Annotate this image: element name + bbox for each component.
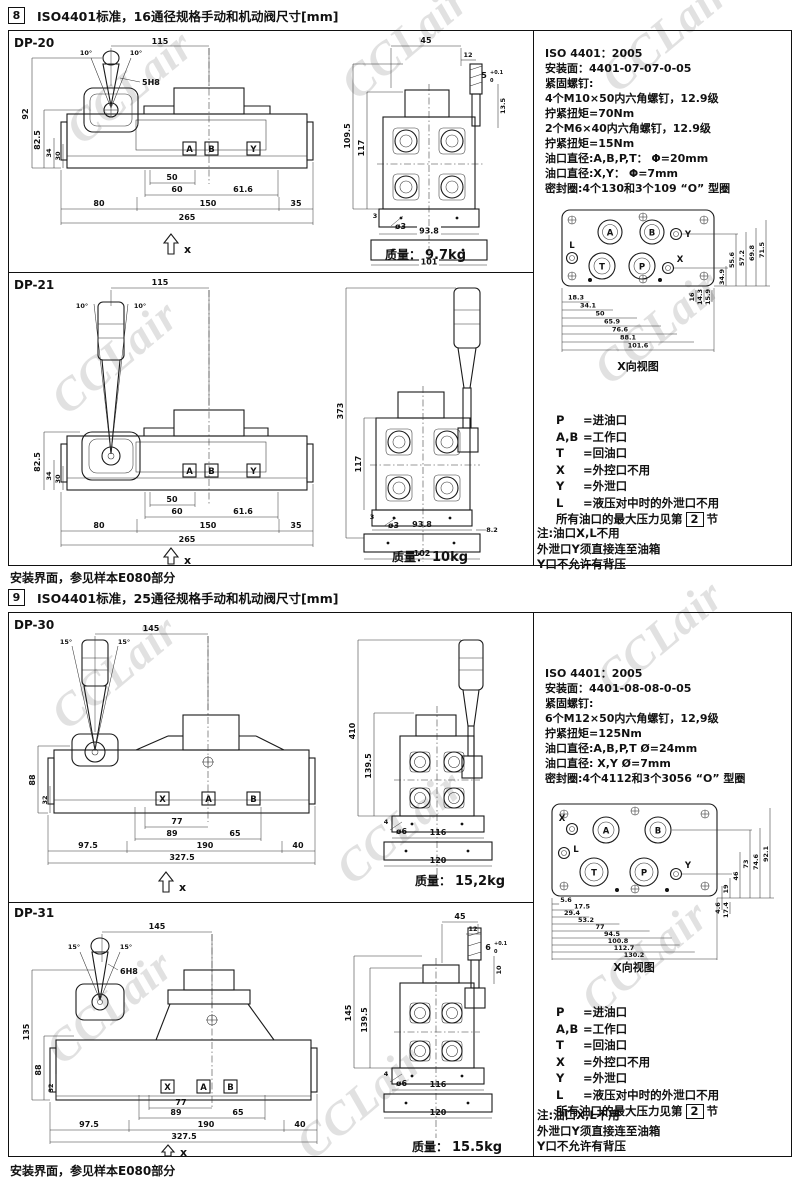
dim-label: 116 xyxy=(430,1080,447,1089)
angle-label: 10° xyxy=(76,302,88,310)
port-label: A xyxy=(186,467,193,477)
section-8-header: 8 ISO4401标准，16通径规格手动和机动阀尺寸[mm] xyxy=(8,6,338,25)
x-direction-label: x xyxy=(180,1146,187,1159)
dp31-side-dimension-lines xyxy=(354,922,494,1118)
dim-label: 45 xyxy=(420,36,432,45)
dim-label: 80 xyxy=(93,521,105,530)
legend-key: T xyxy=(556,445,583,462)
spec-line: 油口直径:A,B,P,T： Φ=20mm xyxy=(545,151,787,166)
dim-label: 35 xyxy=(290,521,302,530)
dim-label: 145 xyxy=(143,624,160,633)
up-arrow-icon xyxy=(162,1145,174,1156)
port-label: B xyxy=(655,827,661,837)
dim-label: 74.6 xyxy=(752,854,760,871)
legend-value: =工作口 xyxy=(583,430,627,444)
dim-label: 77 xyxy=(171,817,182,826)
dim-label: ø6 xyxy=(396,1079,407,1088)
dim-label: 117 xyxy=(357,140,366,157)
dim-label: 5 xyxy=(481,71,487,80)
dim-label: 150 xyxy=(200,521,217,530)
dim-label: 19 xyxy=(722,884,730,894)
dim-label: 3 xyxy=(370,513,375,521)
dim-label: 89 xyxy=(166,829,178,838)
dp20-side-drawing: 45 12 5 +0.1 0 13.5 109.5 117 3 ø3 93.8 … xyxy=(335,36,530,268)
port-label: Y xyxy=(684,230,692,240)
dim-label: 61.6 xyxy=(233,185,253,194)
angle-label: 15° xyxy=(60,638,72,646)
mass-note: 质量：15.5kg xyxy=(412,1138,502,1155)
pin-label: 5H8 xyxy=(142,78,160,87)
panel-divider xyxy=(8,902,533,903)
mass-note: 质量：15,2kg xyxy=(415,872,505,889)
note-line: 外泄口Y须直接连至油箱 xyxy=(537,1124,660,1140)
dim-label: 135 xyxy=(22,1023,31,1040)
dim-label: 12 xyxy=(463,51,472,59)
dim-label: 92.1 xyxy=(762,846,770,863)
note-line: Y口不允许有背压 xyxy=(537,1139,660,1155)
legend-row: Y=外泄口 xyxy=(556,478,719,495)
legend-row: L=液压对中时的外泄口不用 xyxy=(556,1087,719,1104)
legend-key: L xyxy=(556,1087,583,1104)
dim-label: 115 xyxy=(152,37,169,46)
dim-label: 32 xyxy=(47,1083,55,1092)
dim-label: 16 xyxy=(688,292,696,302)
spec-line: 拧紧扭矩=15Nm xyxy=(545,136,787,151)
dim-label: 50 xyxy=(595,310,605,318)
section-9-header: 9 ISO4401标准，25通径规格手动和机动阀尺寸[mm] xyxy=(8,588,338,607)
mass-label: 质量： xyxy=(385,248,421,262)
legend-row: Y=外泄口 xyxy=(556,1070,719,1087)
spec-line: 密封圈:4个130和3个109 “O” 型圈 xyxy=(545,181,787,196)
spec-line: 紧固螺钉: xyxy=(545,76,787,91)
legend-row: A,B=工作口 xyxy=(556,429,719,446)
dim-label: 65.9 xyxy=(604,318,621,326)
spec-line: ISO 4401：2005 xyxy=(545,666,787,681)
dim-label: 88 xyxy=(34,1064,43,1076)
port-label: X xyxy=(159,795,166,805)
angle-label: 15° xyxy=(120,943,132,951)
iso-spec-block: ISO 4401：2005 安装面：4401-08-08-0-05 紧固螺钉: … xyxy=(545,666,787,786)
spec-line: 安装面：4401-08-08-0-05 xyxy=(545,681,787,696)
section-title: ISO4401标准，25通径规格手动和机动阀尺寸[mm] xyxy=(37,588,338,607)
port-label: P xyxy=(639,263,645,273)
dim-label: 120 xyxy=(430,1108,447,1117)
section-title: ISO4401标准，16通径规格手动和机动阀尺寸[mm] xyxy=(37,6,338,25)
dim-label: 34.9 xyxy=(718,269,726,286)
x-direction-label: x xyxy=(184,243,191,256)
dp31-front-drawing: 145 15° 15° 6H8 135 88 32 X A B 77 89 65… xyxy=(16,912,336,1156)
view-caption: X向视图 xyxy=(617,359,658,373)
dim-label: 5.6 xyxy=(560,896,572,904)
port-label: L xyxy=(573,845,579,855)
dim-label: ø3 xyxy=(388,521,399,530)
dim-label: 40 xyxy=(294,1120,306,1129)
up-arrow-icon xyxy=(159,872,173,892)
legend-value: =外泄口 xyxy=(583,479,627,493)
mounting-interface-footnote: 安装界面，参见样本E080部分 xyxy=(10,569,175,586)
legend-row: L=液压对中时的外泄口不用 xyxy=(556,495,719,512)
dim-label: 97.5 xyxy=(79,1120,99,1129)
dim-label: 14.3 xyxy=(696,289,704,305)
dim-label: 80 xyxy=(93,199,105,208)
port-label: B xyxy=(250,795,256,805)
dp21-front-drawing: 115 10° 10° 82.5 34 30 A B Y 50 60 61.6 … xyxy=(16,276,331,566)
mass-value: 9.7kg xyxy=(425,248,466,263)
spec-line: 拧紧扭矩=70Nm xyxy=(545,106,787,121)
legend-value: =外泄口 xyxy=(583,1071,627,1085)
dim-label: 10 xyxy=(495,965,503,975)
spec-line: 4个M10×50内六角螺钉，12.9级 xyxy=(545,91,787,106)
port-label: X xyxy=(559,814,566,824)
dim-label: 93.8 xyxy=(419,227,439,236)
legend-text: 节 xyxy=(707,512,719,526)
legend-text: 所有油口的最大压力见第 xyxy=(556,512,683,526)
dim-label: 71.5 xyxy=(758,242,766,259)
port-label: Y xyxy=(249,145,257,155)
angle-label: 10° xyxy=(134,302,146,310)
dim-label: 82.5 xyxy=(33,452,42,472)
legend-text: 节 xyxy=(707,1104,719,1118)
dp21-side-dimension-lines xyxy=(346,288,486,559)
dim-label: ø3 xyxy=(395,222,406,231)
dim-label: 3 xyxy=(373,212,378,220)
note-block: 注:油口X,L不用 外泄口Y须直接连至油箱 Y口不允许有背压 xyxy=(537,1108,660,1155)
port-label: L xyxy=(569,241,575,251)
dim-label: 53.2 xyxy=(578,916,594,924)
dim-label: 55.6 xyxy=(728,252,736,269)
dim-label: 50 xyxy=(166,173,178,182)
dp30-side-outline xyxy=(384,640,492,886)
legend-key: X xyxy=(556,1054,583,1071)
dim-label: 101.6 xyxy=(628,342,649,350)
column-divider xyxy=(533,30,534,566)
dim-label: 88 xyxy=(28,774,37,786)
legend-key: T xyxy=(556,1037,583,1054)
dp30-side-drawing: 410 139.5 4 ø6 116 120 xyxy=(338,626,533,900)
legend-row: A,B=工作口 xyxy=(556,1021,719,1038)
legend-row: P=进油口 xyxy=(556,1004,719,1021)
port-label: X xyxy=(164,1083,171,1093)
dim-label: 17.4 xyxy=(722,902,730,919)
angle-label: 10° xyxy=(80,49,92,57)
tolerance-lower: 0 xyxy=(490,78,494,84)
dim-label: 61.6 xyxy=(233,507,253,516)
panel-divider xyxy=(8,272,533,273)
dim-label: 82.5 xyxy=(33,130,42,150)
dim-label: 88.1 xyxy=(620,334,637,342)
mass-value: 15,2kg xyxy=(455,874,505,889)
tolerance-upper: +0.1 xyxy=(490,70,504,76)
dim-label: 34 xyxy=(45,148,53,158)
dim-label: 4 xyxy=(384,1070,389,1078)
dim-label: ø6 xyxy=(396,827,407,836)
note-line: 注:油口X,L不用 xyxy=(537,1108,660,1124)
spec-line: 油口直径:A,B,P,T Ø=24mm xyxy=(545,741,787,756)
dim-label: 34.1 xyxy=(580,302,597,310)
legend-key: Y xyxy=(556,1070,583,1087)
dim-label: 30 xyxy=(54,151,62,161)
dim-label: 117 xyxy=(354,456,363,473)
angle-label: 15° xyxy=(118,638,130,646)
spec-line: 油口直径:X,Y： Φ=7mm xyxy=(545,166,787,181)
dim-label: 93.8 xyxy=(412,520,432,529)
dim-label: 130.2 xyxy=(624,951,645,959)
view-caption: X向视图 xyxy=(613,960,654,974)
spec-line: 6个M12×50内六角螺钉，12,9级 xyxy=(545,711,787,726)
spec-line: 拧紧扭矩=125Nm xyxy=(545,726,787,741)
section-ref-box: 2 xyxy=(686,1104,704,1119)
note-line: 注:油口X,L不用 xyxy=(537,526,660,542)
angle-label: 15° xyxy=(68,943,80,951)
dp30-front-drawing: 145 15° 15° 88 32 X A B 77 89 65 97.5 19… xyxy=(16,622,336,900)
section-number: 9 xyxy=(8,589,25,606)
legend-value: =进油口 xyxy=(583,413,627,427)
face16-outline xyxy=(562,210,714,286)
datasheet-page: { "watermark": "CCLair", "sec8": { "num"… xyxy=(0,0,800,1181)
dim-label: 50 xyxy=(166,495,178,504)
dim-label: 8.2 xyxy=(486,526,498,534)
dim-label: 30 xyxy=(54,474,62,484)
legend-key: Y xyxy=(556,478,583,495)
dim-label: 150 xyxy=(200,199,217,208)
port-label: A xyxy=(200,1083,207,1093)
iso-spec-block: ISO 4401：2005 安装面：4401-07-07-0-05 紧固螺钉: … xyxy=(545,46,787,196)
mounting-face-25-drawing: X A B L T P Y 19 46 73 74.6 92.1 4.6 17.… xyxy=(542,790,797,972)
column-divider xyxy=(533,612,534,1157)
dim-label: 109.5 xyxy=(343,123,352,149)
dim-label: 60 xyxy=(171,185,183,194)
spec-line: ISO 4401：2005 xyxy=(545,46,787,61)
tolerance-upper: +0.1 xyxy=(494,941,508,947)
port-label: A xyxy=(603,827,610,837)
port-label: B xyxy=(649,229,655,239)
spec-line: 2个M6×40内六角螺钉，12.9级 xyxy=(545,121,787,136)
dim-label: 139.5 xyxy=(364,753,373,779)
dp31-front-outline xyxy=(50,934,317,1108)
spec-line: 紧固螺钉: xyxy=(545,696,787,711)
section-ref-box: 2 xyxy=(686,512,704,527)
dp20-front-drawing: 115 10° 10° 5H8 92 82.5 34 30 A B Y 50 6… xyxy=(16,36,331,268)
dp31-side-drawing: 45 12 6 +0.1 0 10 145 139.5 4 ø6 116 120 xyxy=(338,908,533,1156)
content-layer: 8 ISO4401标准，16通径规格手动和机动阀尺寸[mm] DP-20 DP-… xyxy=(0,0,800,1181)
up-arrow-icon xyxy=(164,548,178,564)
mass-label: 质量： xyxy=(415,874,451,888)
dim-label: 40 xyxy=(292,841,304,850)
dim-label: 73 xyxy=(742,859,750,868)
dim-label: 4 xyxy=(384,818,389,826)
dim-label: 116 xyxy=(430,828,447,837)
note-line: 外泄口Y须直接连至油箱 xyxy=(537,542,660,558)
legend-value: =工作口 xyxy=(583,1022,627,1036)
dim-label: 46 xyxy=(732,871,740,881)
dim-label: 190 xyxy=(197,841,214,850)
port-label: T xyxy=(599,263,605,273)
dim-label: 139.5 xyxy=(360,1007,369,1033)
dim-label: 13.5 xyxy=(499,98,507,115)
dim-label: 57.2 xyxy=(738,250,746,266)
dim-label: 34 xyxy=(45,471,53,481)
dim-label: 69.8 xyxy=(748,245,756,262)
angle-label: 10° xyxy=(130,49,142,57)
dim-label: 327.5 xyxy=(169,853,195,862)
legend-value: =回油口 xyxy=(583,446,627,460)
mass-value: 15.5kg xyxy=(452,1140,502,1155)
port-label: B xyxy=(208,467,214,477)
mounting-interface-footnote: 安装界面，参见样本E080部分 xyxy=(10,1162,175,1179)
legend-value: =回油口 xyxy=(583,1038,627,1052)
spec-line: 密封圈:4个4112和3个3056 “O” 型圈 xyxy=(545,771,787,786)
port-label: X xyxy=(677,255,684,265)
dp30-front-outline xyxy=(48,636,315,822)
dim-label: 145 xyxy=(344,1004,353,1021)
port-label: P xyxy=(641,869,647,879)
legend-value: =外控口不用 xyxy=(583,463,650,477)
dp20-front-dimension-lines xyxy=(32,46,313,225)
dp21-side-drawing: 373 117 3 ø3 93.8 8.2 102 xyxy=(330,276,530,566)
x-direction-label: x xyxy=(179,881,186,894)
dim-label: 410 xyxy=(348,722,357,739)
legend-value: =外控口不用 xyxy=(583,1055,650,1069)
dim-label: 32 xyxy=(41,795,49,804)
dp31-side-outline xyxy=(384,928,492,1138)
dim-label: 115 xyxy=(152,278,169,287)
mounting-face-16-drawing: L A B Y T P X 34.9 55.6 57.2 69.8 71.5 1… xyxy=(548,198,796,378)
port-label: A xyxy=(205,795,212,805)
dim-label: 120 xyxy=(430,856,447,865)
dim-label: 45 xyxy=(454,912,466,921)
x-direction-label: x xyxy=(184,554,191,567)
legend-key: P xyxy=(556,412,583,429)
dim-label: 77 xyxy=(175,1098,186,1107)
legend-row: T=回油口 xyxy=(556,1037,719,1054)
port-legend: P=进油口 A,B=工作口 T=回油口 X=外控口不用 Y=外泄口 L=液压对中… xyxy=(556,1004,719,1120)
note-block: 注:油口X,L不用 外泄口Y须直接连至油箱 Y口不允许有背压 xyxy=(537,526,660,573)
port-label: T xyxy=(591,869,597,879)
legend-value: =液压对中时的外泄口不用 xyxy=(583,1088,719,1102)
port-label: A xyxy=(186,145,193,155)
port-label: B xyxy=(208,145,214,155)
port-legend: P=进油口 A,B=工作口 T=回油口 X=外控口不用 Y=外泄口 L=液压对中… xyxy=(556,412,719,528)
dim-label: 92 xyxy=(21,108,30,119)
dim-label: 65 xyxy=(232,1108,244,1117)
legend-row: P=进油口 xyxy=(556,412,719,429)
spec-line: 安装面：4401-07-07-0-05 xyxy=(545,61,787,76)
dim-label: 60 xyxy=(171,507,183,516)
legend-key: P xyxy=(556,1004,583,1021)
dim-label: 265 xyxy=(179,535,196,544)
dim-label: 15.9 xyxy=(704,289,712,306)
legend-key: A,B xyxy=(556,1021,583,1038)
dim-label: 145 xyxy=(149,922,166,931)
face25-dimension-lines xyxy=(552,808,774,960)
dim-label: 327.5 xyxy=(171,1132,197,1141)
port-label: B xyxy=(227,1083,233,1093)
port-label: A xyxy=(607,229,614,239)
mass-label: 质量： xyxy=(412,1140,448,1154)
legend-value: =进油口 xyxy=(583,1005,627,1019)
dim-label: 18.3 xyxy=(568,294,584,302)
dim-label: 97.5 xyxy=(78,841,98,850)
dim-label: 6 xyxy=(485,943,491,952)
mass-value: 10kg xyxy=(432,550,468,565)
port-label: Y xyxy=(249,467,257,477)
dim-label: 12 xyxy=(468,925,477,933)
dim-label: 76.6 xyxy=(612,326,629,334)
dim-label: 265 xyxy=(179,213,196,222)
dim-label: 35 xyxy=(290,199,302,208)
legend-value: =液压对中时的外泄口不用 xyxy=(583,496,719,510)
legend-row: T=回油口 xyxy=(556,445,719,462)
tolerance-lower: 0 xyxy=(494,949,498,955)
dim-label: 89 xyxy=(170,1108,182,1117)
legend-key: A,B xyxy=(556,429,583,446)
legend-key: L xyxy=(556,495,583,512)
dim-label: 190 xyxy=(198,1120,215,1129)
pin-label: 6H8 xyxy=(120,967,138,976)
dim-label: 4.6 xyxy=(714,902,722,914)
legend-row: X=外控口不用 xyxy=(556,1054,719,1071)
up-arrow-icon xyxy=(164,234,178,254)
note-line: Y口不允许有背压 xyxy=(537,557,660,573)
dim-label: 65 xyxy=(229,829,241,838)
mass-note: 质量：10kg xyxy=(392,548,468,565)
section-number: 8 xyxy=(8,7,25,24)
dim-label: 373 xyxy=(336,403,345,420)
legend-key: X xyxy=(556,462,583,479)
spec-line: 油口直径: X,Y Ø=7mm xyxy=(545,756,787,771)
port-label: Y xyxy=(684,861,692,871)
legend-row: X=外控口不用 xyxy=(556,462,719,479)
mass-note: 质量：9.7kg xyxy=(385,246,466,263)
mass-label: 质量： xyxy=(392,550,428,564)
dp20-front-outline xyxy=(61,48,313,184)
